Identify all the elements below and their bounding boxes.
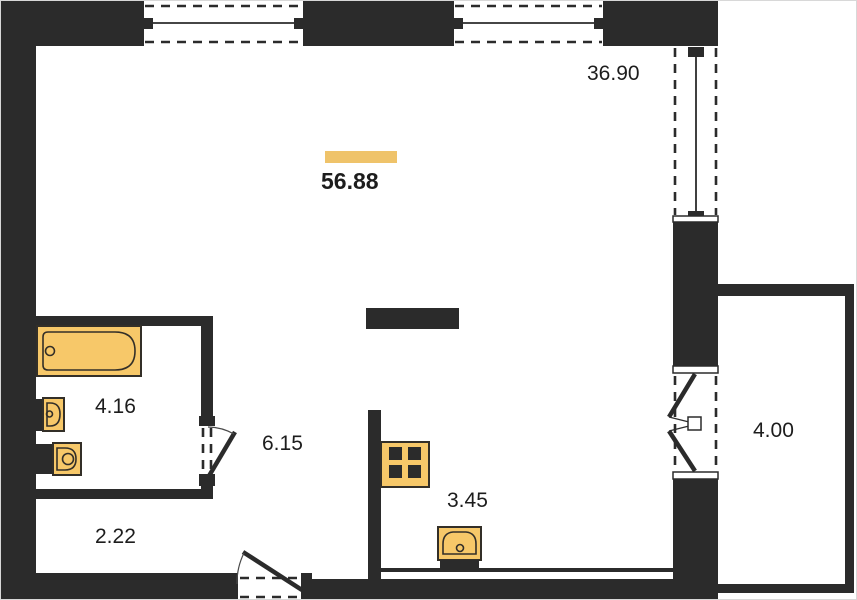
outer-walls bbox=[1, 1, 718, 600]
total-area-highlight bbox=[325, 151, 397, 163]
floor-plan-drawing bbox=[1, 1, 857, 600]
bathroom-area-label: 4.16 bbox=[95, 395, 136, 419]
kitchen-island bbox=[366, 308, 459, 329]
washbasin-icon bbox=[36, 398, 64, 431]
bathroom-door bbox=[203, 427, 235, 481]
bathtub-icon bbox=[37, 326, 141, 376]
top-window-1 bbox=[144, 6, 303, 42]
kitchen-sink-icon bbox=[438, 527, 481, 569]
total-area-label: 56.88 bbox=[321, 168, 379, 195]
balcony-french-door bbox=[669, 366, 718, 479]
hallway-area-label: 6.15 bbox=[262, 432, 303, 456]
storage-area-label: 2.22 bbox=[95, 525, 136, 549]
kitchen-area-label: 3.45 bbox=[447, 489, 488, 513]
balcony-area-label: 4.00 bbox=[753, 419, 794, 443]
right-window bbox=[673, 47, 718, 222]
stove-icon bbox=[381, 442, 429, 487]
entry-door bbox=[228, 552, 312, 599]
living-room-area-label: 36.90 bbox=[587, 62, 640, 86]
floor-plan: 56.88 36.90 4.16 6.15 2.22 3.45 4.00 bbox=[0, 0, 857, 600]
top-window-2 bbox=[454, 6, 603, 42]
toilet-icon bbox=[36, 443, 81, 475]
